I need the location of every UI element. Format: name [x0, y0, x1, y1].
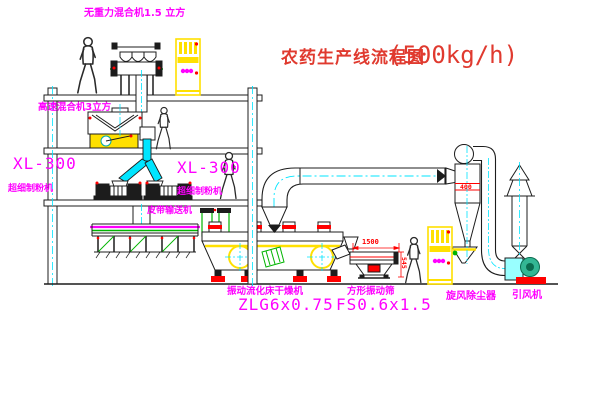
control-cabinet-ground	[428, 227, 452, 284]
label-mill-left-model: XL-300	[13, 156, 77, 172]
label-cyclone: 旋风除尘器	[446, 292, 496, 302]
dimension-screen-height: 545	[401, 257, 408, 269]
dimension-cyclone: 400	[460, 184, 472, 191]
diagram-capacity: (500kg/h)	[388, 43, 518, 67]
belt-conveyor	[90, 224, 200, 258]
induced-draft-fan	[505, 258, 546, 285]
label-dryer-model: ZLG6x0.75	[238, 297, 334, 313]
dryer-feet	[211, 270, 341, 282]
label-mill-left-name: 超细制粉机	[8, 185, 53, 194]
process-flow-diagram: 无重力混合机1.5 立方 农药生产线流程图 (500kg/h) 高速混合机3立方…	[0, 0, 600, 403]
building-column-front	[248, 86, 257, 286]
label-fan: 引风机	[512, 291, 542, 301]
worker-top-floor	[78, 38, 97, 93]
cyclone-separator	[452, 145, 480, 265]
bucket-elevator-cabinet-top	[176, 39, 200, 95]
label-mill-center-name: 超细制粉机	[177, 188, 222, 197]
label-belt-conveyor: 皮带输送机	[147, 207, 192, 216]
label-mill-center-model: XL-300	[177, 160, 241, 176]
label-screen-model: FS0.6x1.5	[336, 297, 432, 313]
exhaust-stack	[504, 162, 535, 266]
label-gravity-mixer: 无重力混合机1.5 立方	[84, 9, 185, 19]
dimension-screen-length: 1500	[362, 239, 379, 246]
label-high-speed-mixer: 高速混合机3立方	[38, 103, 111, 113]
worker-second-floor	[156, 107, 170, 148]
gravity-free-mixer	[110, 43, 163, 114]
